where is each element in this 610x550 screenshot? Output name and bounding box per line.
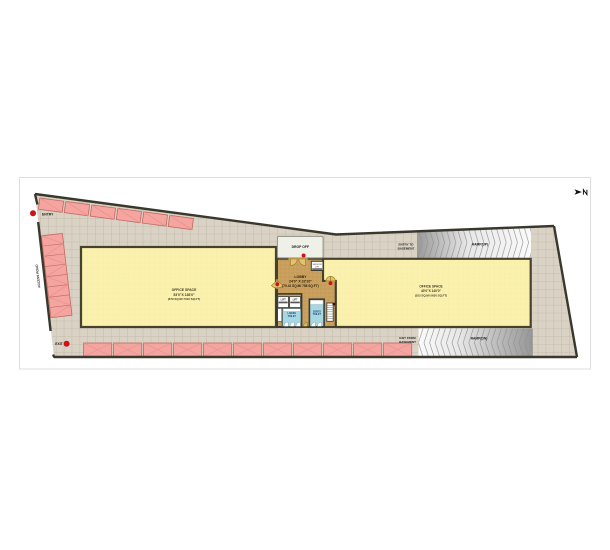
svg-text:LOBBY: LOBBY (294, 275, 307, 279)
svg-text:(523 SQ.M/ 5630 SQ.FT): (523 SQ.M/ 5630 SQ.FT) (415, 294, 447, 298)
svg-text:BASEMENT: BASEMENT (398, 246, 415, 250)
svg-text:LIFT: LIFT (293, 299, 299, 302)
svg-text:BASEMENT: BASEMENT (399, 340, 416, 344)
svg-text:EXIT: EXIT (55, 342, 63, 346)
svg-text:(70.41 SQ.M/ 758 SQ.FT): (70.41 SQ.M/ 758 SQ.FT) (282, 284, 319, 288)
svg-text:TOILET: TOILET (313, 314, 322, 316)
svg-text:OFFICE SPACE: OFFICE SPACE (172, 288, 198, 292)
svg-text:LADIES: LADIES (287, 312, 296, 315)
svg-text:TOILET: TOILET (288, 316, 297, 318)
svg-text:ENTRY: ENTRY (42, 212, 54, 216)
svg-text:GENTS: GENTS (313, 311, 321, 313)
svg-text:DROP OFF: DROP OFF (292, 245, 309, 249)
svg-text:LIFT: LIFT (315, 266, 320, 268)
svg-text:(679 SQ.M/ 7310 SQ.FT): (679 SQ.M/ 7310 SQ.FT) (168, 297, 200, 301)
svg-text:24'0" X 32'10": 24'0" X 32'10" (289, 280, 312, 284)
svg-text:RAMP(DN): RAMP(DN) (471, 337, 488, 341)
svg-text:RAMP(UP): RAMP(UP) (472, 242, 488, 246)
svg-text:LIFT: LIFT (281, 299, 287, 302)
svg-text:40'0"X 140'0": 40'0"X 140'0" (421, 289, 441, 293)
